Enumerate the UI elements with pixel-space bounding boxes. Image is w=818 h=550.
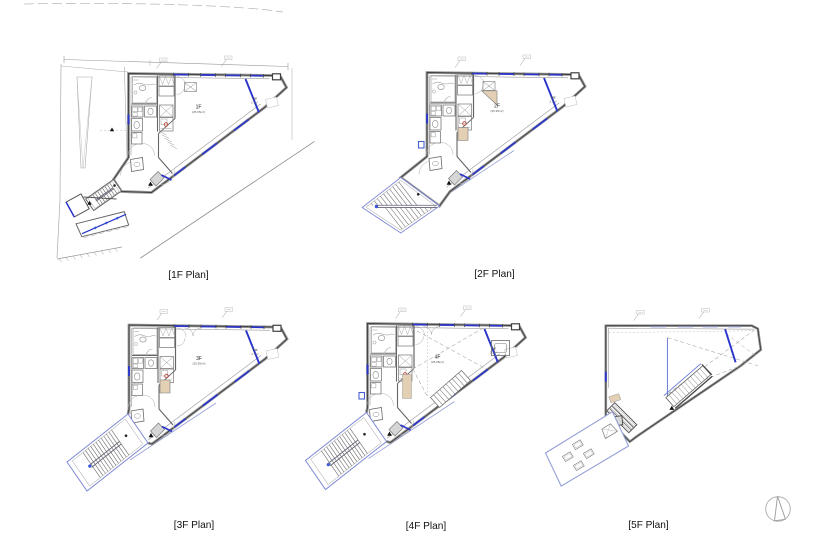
svg-text:(25.95m²): (25.95m²)	[431, 360, 444, 364]
svg-text:(25.95m²): (25.95m²)	[490, 109, 503, 113]
svg-text:[4F Plan]: [4F Plan]	[406, 521, 447, 532]
svg-text:2.3m²: 2.3m²	[549, 100, 556, 104]
svg-text:(25.65m²): (25.65m²)	[192, 110, 205, 114]
svg-text:[5F Plan]: [5F Plan]	[628, 520, 669, 531]
svg-text:2.3m²: 2.3m²	[251, 101, 258, 105]
svg-text:[2F Plan]: [2F Plan]	[474, 269, 515, 280]
svg-text:[3F Plan]: [3F Plan]	[174, 520, 215, 531]
svg-text:(25.95m²): (25.95m²)	[192, 362, 205, 366]
svg-text:2.3m²: 2.3m²	[251, 352, 258, 356]
svg-text:[1F Plan]: [1F Plan]	[168, 270, 209, 281]
